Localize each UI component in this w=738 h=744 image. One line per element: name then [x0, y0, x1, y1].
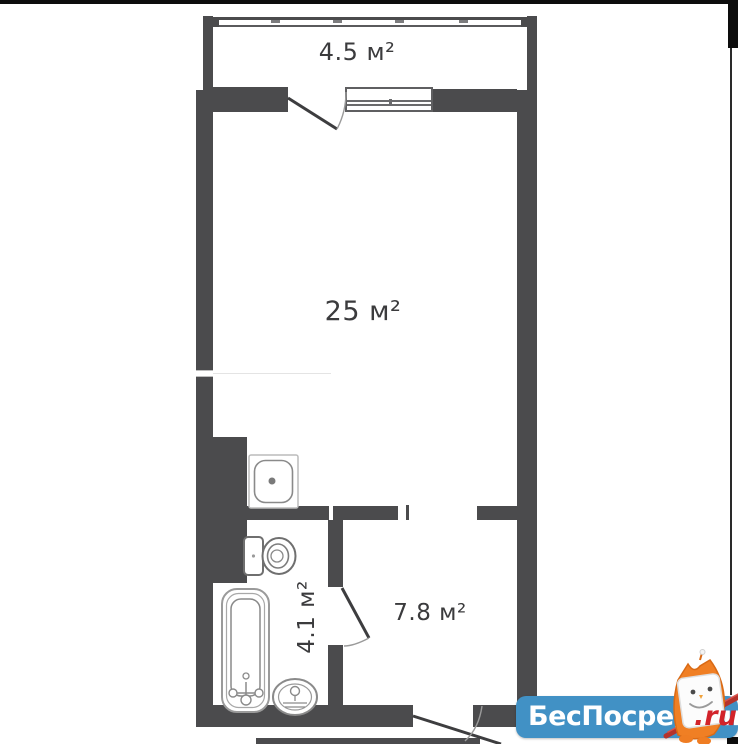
bathroom-door-icon [342, 588, 369, 646]
living-room-area-label: 25 м² [298, 296, 428, 327]
floor-plan-screenshot: 4.5 м² 25 м² 4.1 м² 7.8 м² БесПосредника… [0, 0, 738, 744]
balcony-door-icon [288, 92, 346, 129]
entrance-door-icon [413, 706, 501, 744]
washbasin-icon [273, 679, 317, 715]
bathroom-area-label: 4.1 м² [294, 561, 320, 673]
plan-symbols-layer [0, 0, 738, 744]
toilet-icon [244, 537, 296, 575]
balcony-area-label: 4.5 м² [297, 38, 417, 66]
hallway-area-label: 7.8 м² [370, 600, 490, 626]
watermark-domain-suffix: .ru [694, 701, 737, 732]
bathtub-icon [222, 589, 269, 712]
kitchen-sink-icon [249, 455, 298, 508]
